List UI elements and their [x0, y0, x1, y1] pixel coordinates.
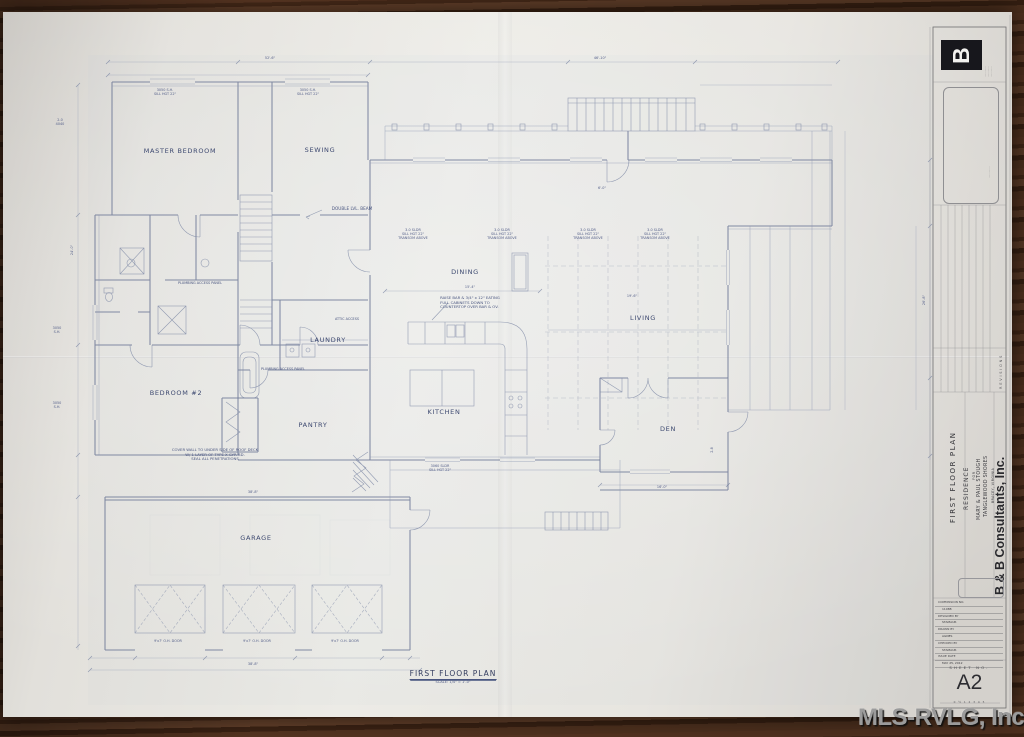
titleblock-table-row: COMMISSION NO. — [935, 600, 1003, 607]
micro-annotation: 3050 S.H. — [53, 326, 62, 334]
titleblock-table-row: STAMAUR — [935, 620, 1003, 627]
micro-annotation: 52'-6" — [265, 56, 275, 60]
titleblock-table-row: CHECKED BY — [935, 641, 1003, 648]
room-label-living: LIVING — [630, 314, 656, 322]
plan-scale: SCALE: 1/4" = 1'-0" — [435, 680, 470, 684]
micro-annotation: 38'-8" — [248, 490, 258, 494]
micro-annotation: 24'-0" — [70, 245, 74, 255]
micro-annotation: 3-0 SLDR SILL HGT 22" TRANSOM ABOVE — [640, 228, 670, 240]
room-label-pantry: PANTRY — [298, 421, 327, 429]
titleblock-table-row: AGNES — [935, 634, 1003, 641]
note-cover-wall: COVER WALL TO UNDER SIDE OF ROOF DECK W/… — [172, 448, 258, 462]
micro-annotation: 3-0 SLDR SILL HGT 22" TRANSOM ABOVE — [573, 228, 603, 240]
titleblock-table-row: DRAWN BY — [935, 627, 1003, 634]
micro-annotation: 26'-8" — [922, 295, 926, 305]
micro-annotation: 6'-0" — [598, 186, 606, 190]
micro-annotation: 3-0 SLDR SILL HGT 22" TRANSOM ABOVE — [487, 228, 517, 240]
micro-annotation: 16'-0" — [657, 485, 667, 489]
titleblock-table-row: STAMAUR — [935, 648, 1003, 655]
sheet-number-label: SHEET NO. — [933, 665, 1006, 670]
titleblock-subdivision: TANGLEWOOD SHORES — [984, 456, 989, 517]
micro-annotation: 46'-10" — [594, 56, 606, 60]
titleblock-table: COMMISSION NO.11088DESIGNED BYSTAMAURDRA… — [935, 600, 1003, 658]
micro-annotation: 15'-4" — [465, 285, 475, 289]
titleblock-table-row: ISSUE DATE — [935, 654, 1003, 661]
titleblock-logo-fineprint: ············· ············· ············… — [984, 66, 994, 77]
titleblock-project-type: RESIDENCE — [963, 467, 970, 510]
micro-annotation: 3-0 SLDR SILL HGT 22" TRANSOM ABOVE — [398, 228, 428, 240]
room-label-kitchen: KITCHEN — [427, 408, 460, 416]
note-double-beam: DOUBLE LVL. BEAM — [332, 206, 373, 211]
room-label-bedroom2: BEDROOM #2 — [150, 389, 203, 397]
photo-of-blueprint: MASTER BEDROOM SEWING DINING LIVING KITC… — [0, 0, 1024, 737]
firm-logo: B — [941, 40, 982, 70]
micro-annotation: 2-0 4040 — [56, 118, 65, 126]
micro-annotation: 38'-8" — [248, 662, 258, 666]
titleblock-table-row: DESIGNED BY — [935, 614, 1003, 621]
note-attic-access: ATTIC ACCESS — [335, 317, 359, 321]
titleblock-stamp-fineprint: ·············· — [988, 166, 991, 178]
note-plumbing-access-2: PLUMBING ACCESS PANEL — [261, 367, 305, 371]
sheet-number: A2 — [933, 671, 1006, 695]
micro-annotation: 2-8 — [710, 447, 714, 453]
plan-title: FIRST FLOOR PLAN — [410, 669, 497, 680]
micro-annotation: 3050 S.H. SILL HGT 22" — [297, 88, 319, 96]
room-label-sewing: SEWING — [305, 146, 336, 154]
titleblock-revisions-label: REVISIONS — [999, 354, 1003, 389]
micro-annotation: 3050 S.H. — [53, 401, 62, 409]
room-label-garage: GARAGE — [240, 534, 271, 542]
room-label-den: DEN — [660, 425, 676, 433]
room-label-laundry: LAUNDRY — [310, 336, 346, 344]
micro-annotation: 19'-6" — [627, 294, 637, 298]
firm-logo-letter: B — [950, 47, 973, 64]
room-label-dining: DINING — [451, 268, 479, 276]
note-raise-bar: RAISE BAR & 3/4" x 12" EATING FULL CABIN… — [440, 296, 500, 310]
room-label-master-bedroom: MASTER BEDROOM — [144, 147, 217, 155]
titleblock-project-for: FOR — [972, 471, 976, 480]
titleblock-small-box — [958, 578, 1004, 598]
micro-annotation: 3050 S.H. SILL HGT 22" — [154, 88, 176, 96]
note-plumbing-access-1: PLUMBING ACCESS PANEL — [178, 281, 222, 285]
titleblock-client-name: MARY & PAUL STOUGH — [977, 458, 982, 520]
floorplan-linework — [0, 0, 1024, 737]
micro-annotation: 9'x7' O.H. DOOR — [154, 639, 182, 643]
watermark-text: MLS-RVLG, Inc. — [858, 704, 1024, 732]
titleblock-firm-fineprint: ······························· — [1004, 564, 1007, 590]
titleblock-stamp-box — [943, 87, 999, 204]
micro-annotation: 9'x7' O.H. DOOR — [243, 639, 271, 643]
micro-annotation: 9'x7' O.H. DOOR — [331, 639, 359, 643]
titleblock-sheet-title: FIRST FLOOR PLAN — [949, 431, 957, 523]
titleblock-table-row: 11088 — [935, 607, 1003, 614]
micro-annotation: 3060 SLDR SILL HGT 22" — [429, 464, 451, 472]
